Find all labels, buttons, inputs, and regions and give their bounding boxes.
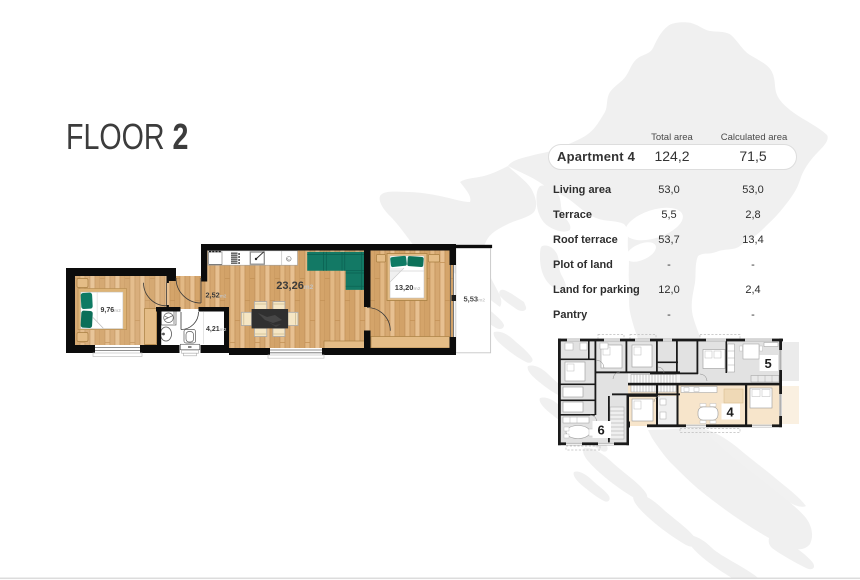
svg-text:5: 5	[765, 356, 772, 371]
svg-text:6: 6	[598, 423, 605, 438]
svg-text:4: 4	[727, 405, 735, 420]
